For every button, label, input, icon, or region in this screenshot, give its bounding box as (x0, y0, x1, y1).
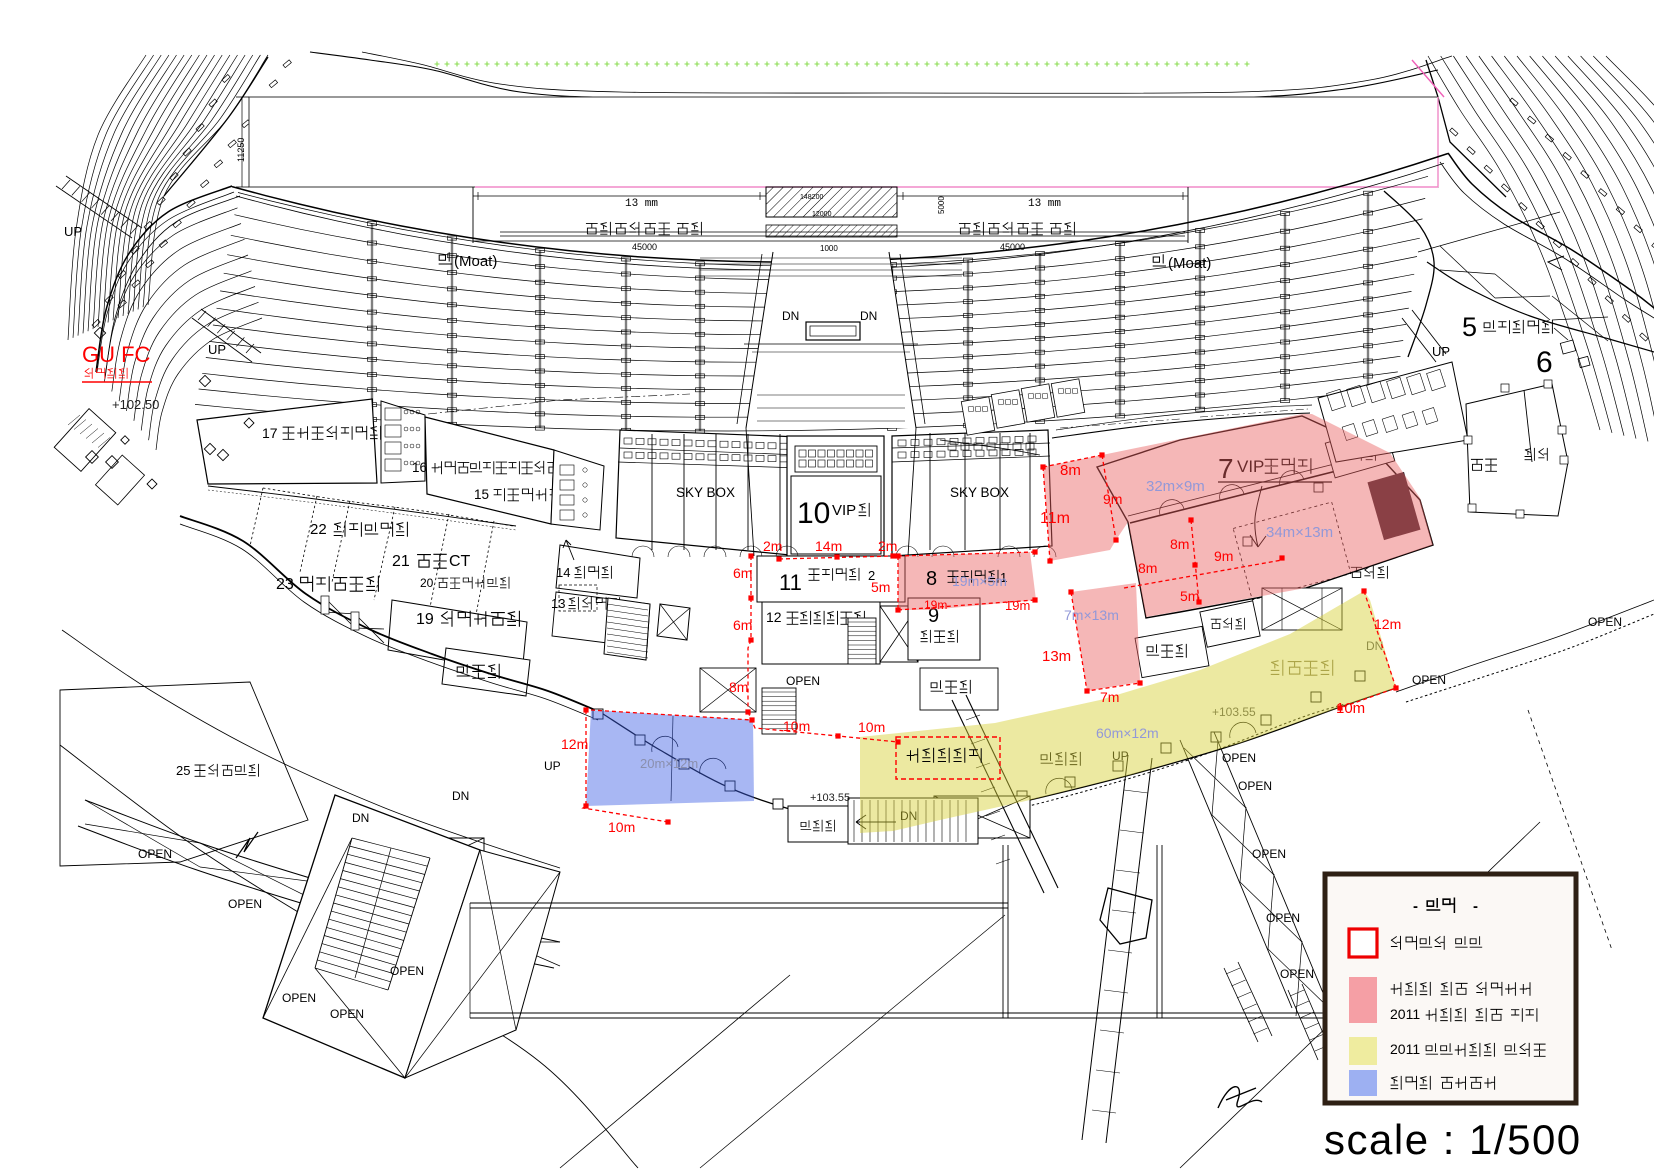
svg-text:32m×9m: 32m×9m (1146, 478, 1205, 495)
svg-text:6: 6 (1536, 346, 1553, 379)
svg-text:1000: 1000 (820, 244, 838, 253)
svg-text:-: - (1413, 898, 1418, 915)
svg-text:21: 21 (392, 553, 410, 570)
svg-text:9m: 9m (1103, 491, 1122, 507)
svg-text:16: 16 (412, 460, 427, 475)
svg-text:OPEN: OPEN (786, 674, 820, 688)
svg-text:10: 10 (797, 497, 830, 530)
svg-text:10m: 10m (608, 819, 635, 835)
svg-text:34m×13m: 34m×13m (1266, 524, 1333, 541)
svg-text:11: 11 (779, 570, 802, 595)
svg-text:10m: 10m (783, 718, 810, 734)
svg-text:19m: 19m (924, 598, 947, 612)
svg-text:6m: 6m (733, 565, 752, 581)
svg-text:OPEN: OPEN (1238, 779, 1272, 793)
svg-text:OPEN: OPEN (282, 991, 316, 1005)
svg-text:10m: 10m (1336, 700, 1365, 717)
svg-text:23: 23 (276, 576, 294, 593)
svg-text:OPEN: OPEN (1588, 615, 1622, 629)
svg-text:OPEN: OPEN (1266, 911, 1300, 925)
svg-text:6m: 6m (733, 617, 752, 633)
svg-text:DN: DN (860, 309, 877, 323)
svg-text:DN: DN (782, 309, 799, 323)
svg-text:8: 8 (926, 568, 937, 590)
svg-text:(Moat): (Moat) (454, 253, 497, 270)
svg-text:2011: 2011 (1390, 1041, 1420, 1057)
svg-text:OPEN: OPEN (330, 1007, 364, 1021)
svg-text:9m: 9m (1214, 548, 1233, 564)
svg-text:10m: 10m (858, 719, 885, 735)
svg-text:2m: 2m (878, 538, 897, 554)
svg-text:14m: 14m (815, 538, 842, 554)
svg-text:15: 15 (474, 487, 489, 502)
svg-text:19m×5m: 19m×5m (952, 573, 1007, 589)
svg-text:5: 5 (1462, 312, 1477, 342)
svg-text:11250: 11250 (236, 138, 246, 162)
svg-text:14: 14 (556, 565, 570, 580)
svg-text:13m: 13m (1042, 648, 1071, 665)
svg-text:60m×12m: 60m×12m (1096, 725, 1159, 741)
svg-text:17: 17 (262, 425, 278, 441)
svg-text:OPEN: OPEN (1412, 673, 1446, 687)
svg-text:5000: 5000 (937, 196, 946, 214)
svg-text:OPEN: OPEN (1280, 967, 1314, 981)
svg-text:13 mm: 13 mm (625, 198, 658, 210)
svg-text:OPEN: OPEN (138, 847, 172, 861)
svg-text:25: 25 (176, 763, 190, 778)
svg-text:8m: 8m (729, 679, 748, 695)
svg-text:8m: 8m (1060, 462, 1081, 479)
svg-text:SKY BOX: SKY BOX (676, 485, 735, 500)
svg-text:7m×13m: 7m×13m (1064, 607, 1119, 623)
svg-text:12m: 12m (561, 736, 588, 752)
svg-text:2011: 2011 (1390, 1006, 1420, 1022)
svg-text:12000: 12000 (812, 211, 832, 218)
svg-text:(Moat): (Moat) (1168, 255, 1211, 272)
svg-text:5m: 5m (871, 579, 890, 595)
svg-text:22: 22 (310, 521, 327, 538)
svg-text:OPEN: OPEN (1252, 847, 1286, 861)
svg-text:20m×12m: 20m×12m (640, 756, 698, 771)
svg-text:148200: 148200 (800, 194, 823, 201)
svg-text:13: 13 (551, 596, 565, 611)
svg-text:SKY BOX: SKY BOX (950, 485, 1009, 500)
svg-text:8m: 8m (1170, 536, 1189, 552)
svg-text:+102.50: +102.50 (112, 397, 159, 412)
svg-text:VIP: VIP (832, 502, 856, 519)
svg-text:DN: DN (452, 789, 469, 803)
svg-text:scale : 1/500: scale : 1/500 (1324, 1116, 1582, 1163)
svg-text:CT: CT (449, 553, 471, 570)
svg-text:13 mm: 13 mm (1028, 198, 1061, 210)
svg-text:-: - (1473, 898, 1478, 915)
svg-text:7m: 7m (1100, 689, 1119, 705)
svg-text:UP: UP (208, 342, 226, 357)
svg-text:OPEN: OPEN (390, 964, 424, 978)
svg-text:UP: UP (544, 759, 561, 773)
svg-text:12m: 12m (1374, 616, 1401, 632)
svg-text:8m: 8m (1138, 560, 1157, 576)
svg-text:2m: 2m (763, 538, 782, 554)
svg-text:GU FC: GU FC (82, 342, 151, 367)
svg-text:UP: UP (1432, 344, 1450, 359)
svg-text:12: 12 (766, 609, 782, 625)
svg-text:11m: 11m (1040, 510, 1070, 527)
svg-text:19: 19 (416, 611, 434, 628)
svg-text:+103.55: +103.55 (810, 792, 850, 804)
svg-text:OPEN: OPEN (228, 897, 262, 911)
svg-text:20: 20 (420, 576, 434, 590)
svg-text:OPEN: OPEN (1222, 751, 1256, 765)
svg-text:5m: 5m (1180, 588, 1199, 604)
svg-text:19m: 19m (1005, 598, 1030, 613)
svg-text:DN: DN (352, 811, 369, 825)
svg-text:45000: 45000 (632, 242, 657, 252)
svg-text:UP: UP (64, 224, 82, 239)
